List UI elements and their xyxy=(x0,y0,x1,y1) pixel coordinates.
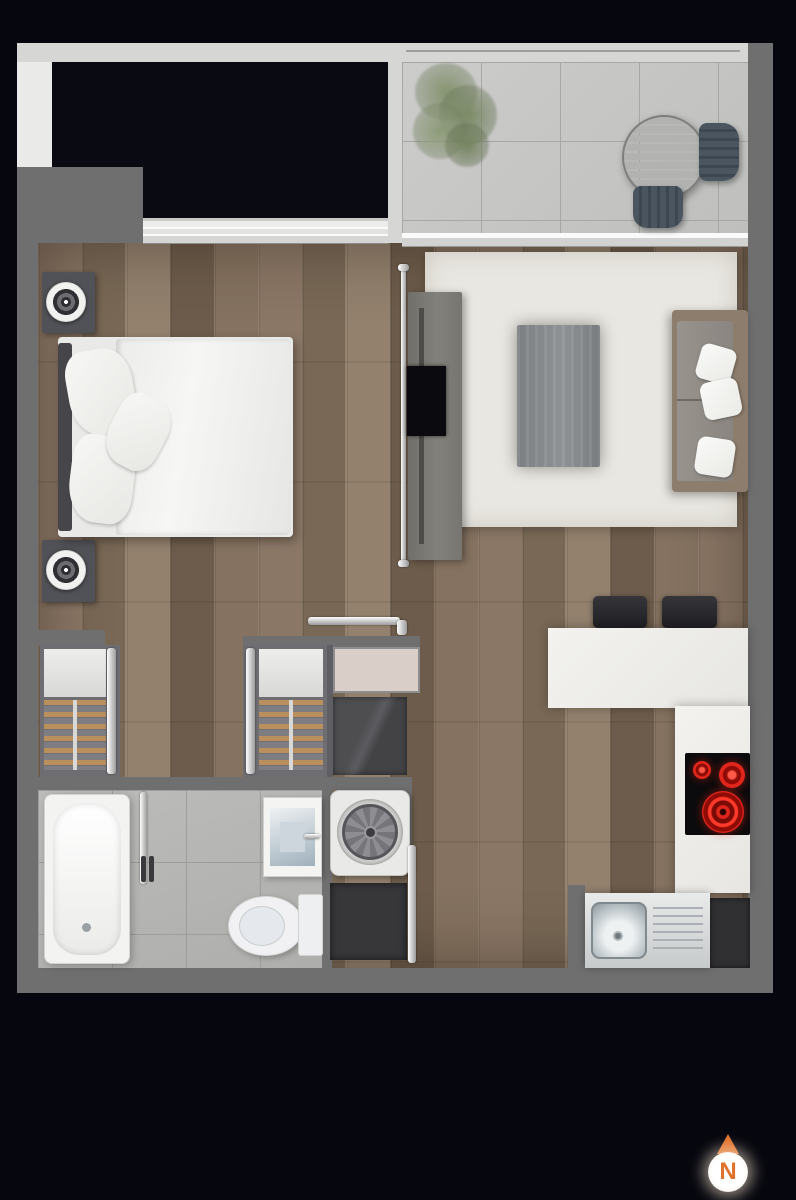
bedroom-door-cap xyxy=(398,560,409,567)
toilet-bowl xyxy=(228,896,304,956)
bathroom-north-wall xyxy=(38,777,412,790)
wardrobe-left-rod xyxy=(107,648,116,774)
bedroom-door-cap xyxy=(398,264,409,271)
compass-disc: N xyxy=(708,1152,748,1192)
bedroom-south-wall-stub xyxy=(38,630,105,646)
kitchen-sink-counter xyxy=(585,893,710,968)
wardrobe-left xyxy=(40,645,120,777)
coffee-table xyxy=(517,325,600,467)
bathroom-door-handle xyxy=(141,856,146,882)
wardrobe-left-shelf xyxy=(44,649,106,697)
kitchen-sink-wall-stub xyxy=(568,885,585,968)
cooktop-burner-medium xyxy=(719,762,745,788)
washer-agitator-cap xyxy=(364,826,377,839)
compass-letter: N xyxy=(708,1152,748,1192)
floor-plan-canvas: N xyxy=(0,0,796,1200)
wardrobe-right-hangers xyxy=(259,700,323,770)
kitchen-sink-drain xyxy=(613,931,623,941)
bottom-wall xyxy=(17,968,773,993)
cooktop xyxy=(685,753,750,835)
washbasin-faucet xyxy=(304,834,320,839)
compass-arrow-icon xyxy=(717,1134,739,1154)
sofa-pillow-3 xyxy=(693,435,736,478)
sofa-pillow-2 xyxy=(698,376,743,421)
tv-screen xyxy=(407,366,446,436)
washing-machine xyxy=(330,790,410,876)
lamp-top xyxy=(46,282,86,322)
left-exterior-strip xyxy=(17,62,52,167)
dishwasher xyxy=(710,898,750,968)
laundry-dark-cabinet xyxy=(330,883,407,960)
left-wall xyxy=(17,243,38,993)
compass-north-arrow: N xyxy=(700,1130,756,1200)
top-wall-railing xyxy=(17,43,748,62)
balcony-chair-bottom xyxy=(633,186,683,228)
bar-stool-2 xyxy=(662,596,717,628)
bedroom-window xyxy=(143,218,388,244)
bathtub xyxy=(44,794,130,964)
bathroom-door-handle xyxy=(149,856,154,882)
laundry-door-track xyxy=(408,845,416,963)
toilet-seat xyxy=(239,906,285,946)
balcony-chair-right xyxy=(699,123,739,181)
bedroom-sliding-door-track xyxy=(401,268,406,563)
balcony-sliding-door xyxy=(402,233,748,247)
lamp-bottom xyxy=(46,550,86,590)
void-balcony-divider-wall xyxy=(388,62,402,243)
laundry-dark-appliance xyxy=(333,697,407,775)
sofa xyxy=(672,310,748,492)
washbasin xyxy=(263,797,322,877)
wardrobe-right-shelf xyxy=(259,649,323,697)
double-bed xyxy=(58,337,293,537)
hall-door-post xyxy=(397,620,407,635)
corner-wall-block xyxy=(17,167,143,243)
breakfast-bar xyxy=(548,628,748,708)
hall-sliding-door xyxy=(308,617,400,625)
toilet-tank xyxy=(298,894,323,956)
right-wall xyxy=(748,43,773,993)
bar-stool-1 xyxy=(593,596,647,628)
washbasin-bowl-inner xyxy=(280,822,305,852)
cooktop-burner-small xyxy=(693,761,711,779)
wardrobe-right-rod xyxy=(246,648,255,774)
balcony-plant xyxy=(405,55,505,170)
plant-foliage xyxy=(445,123,489,167)
wardrobe-left-hangers xyxy=(44,700,106,770)
balcony-railing-line xyxy=(406,50,740,52)
kitchen-drainboard xyxy=(653,907,703,953)
laundry-cabinet-top xyxy=(333,647,420,693)
cooktop-burner-large xyxy=(702,791,744,833)
bathtub-drain xyxy=(82,923,91,932)
wardrobe-right xyxy=(243,645,327,777)
bathtub-basin xyxy=(53,803,121,955)
